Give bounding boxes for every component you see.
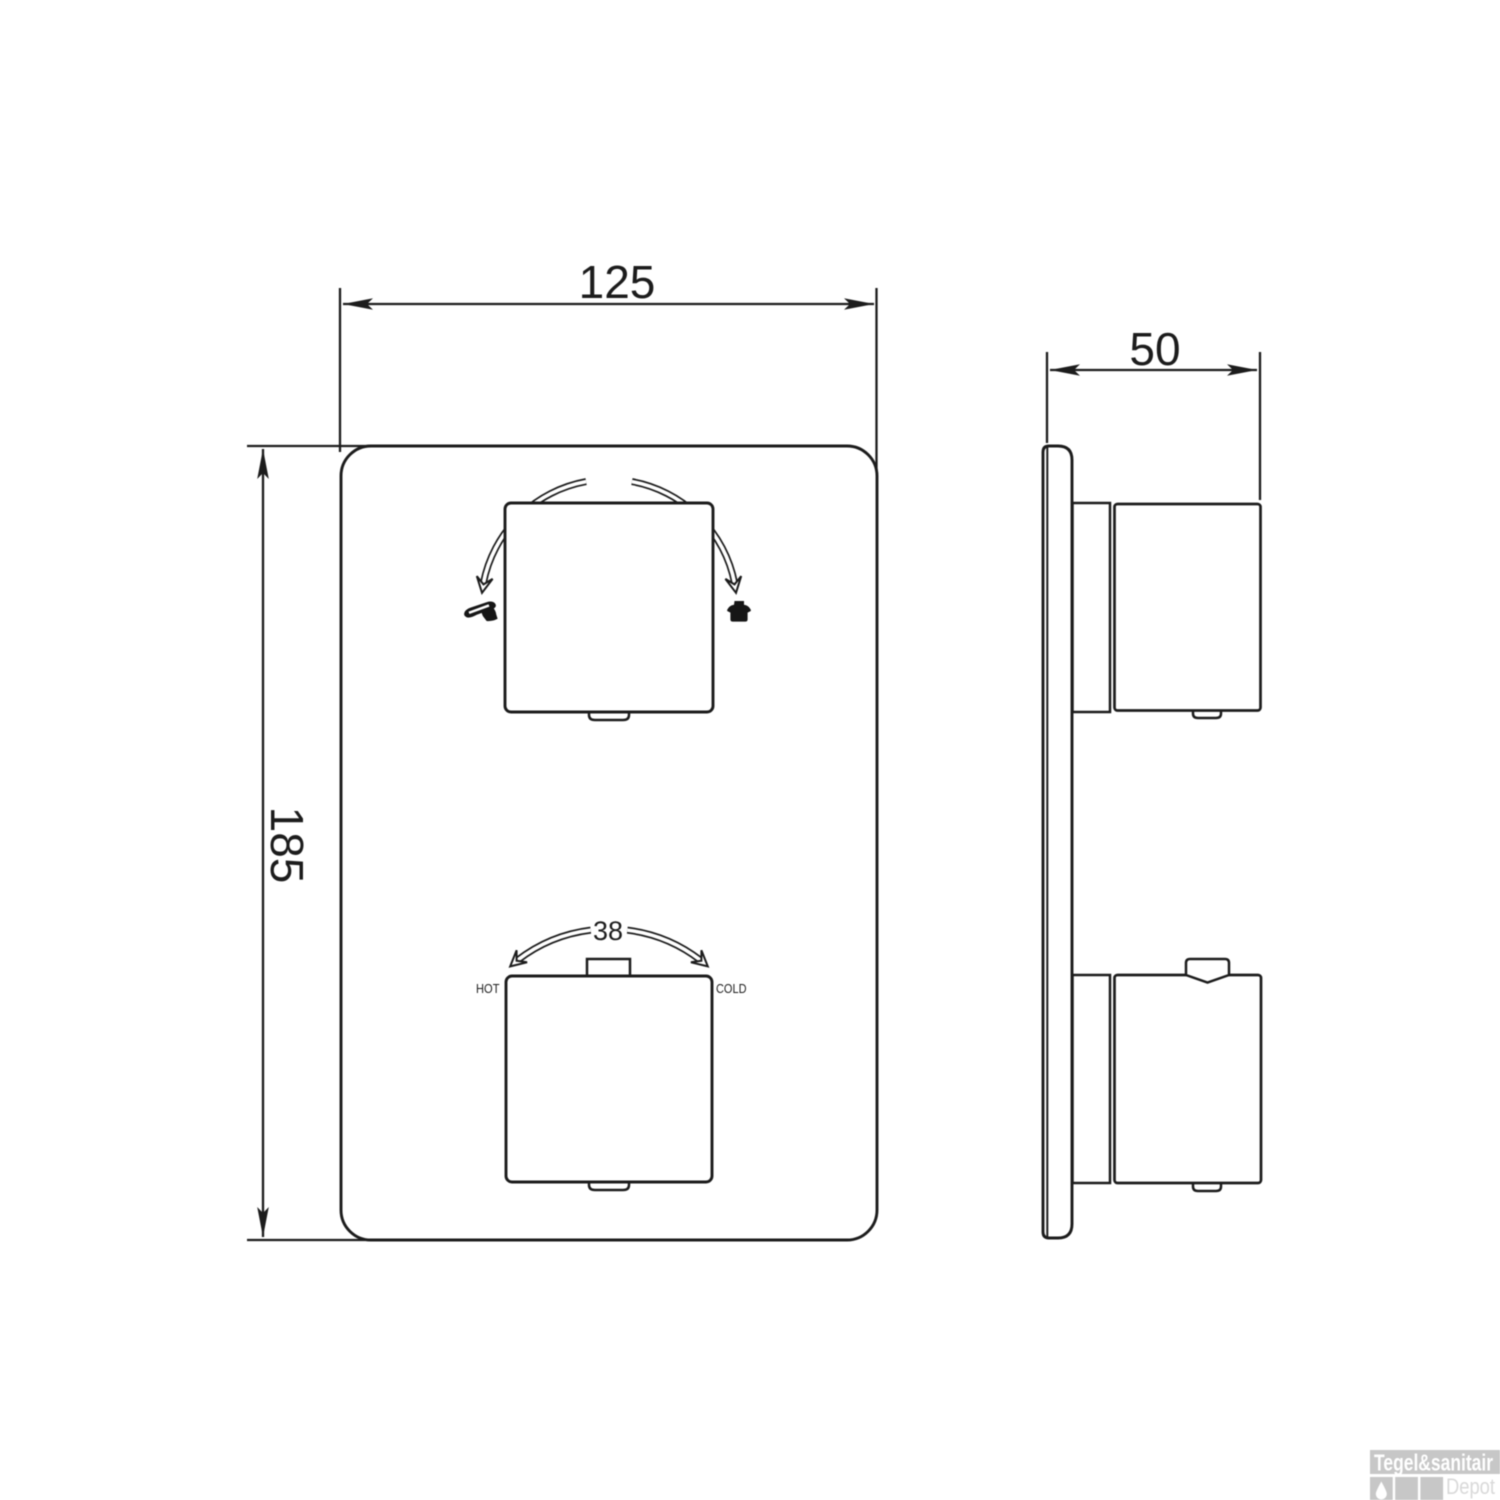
svg-text:50: 50 [1129, 323, 1180, 375]
svg-text:Depot: Depot [1446, 1474, 1495, 1499]
svg-text:COLD: COLD [716, 981, 747, 996]
svg-text:185: 185 [261, 807, 313, 884]
svg-text:38: 38 [593, 916, 623, 946]
svg-text:HOT: HOT [476, 981, 500, 996]
svg-text:125: 125 [579, 256, 656, 308]
svg-text:Tegel&sanitair: Tegel&sanitair [1374, 1450, 1493, 1476]
